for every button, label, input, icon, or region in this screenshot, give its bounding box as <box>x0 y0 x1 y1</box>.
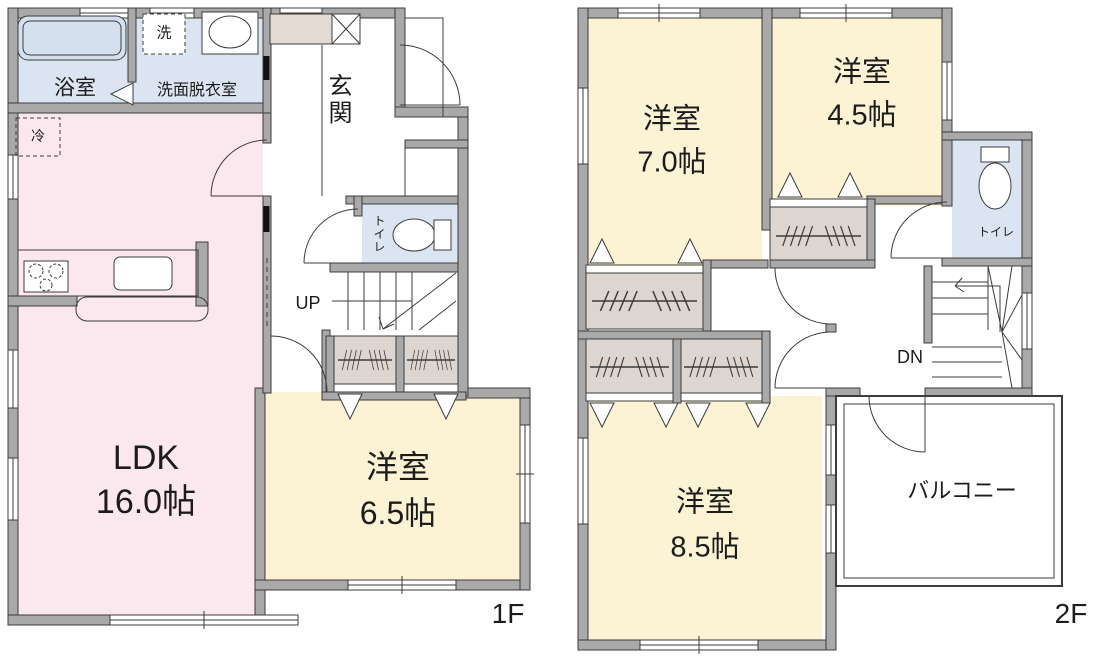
shoe-cabinet <box>270 14 332 44</box>
washer-label: 洗 <box>156 26 171 41</box>
bathtub-icon <box>18 16 126 60</box>
window <box>8 350 18 408</box>
window <box>8 155 18 199</box>
window <box>8 458 18 520</box>
door-arc-entrance <box>400 45 460 105</box>
bedroom45-size: 4.5帖 <box>827 102 896 131</box>
toilet-icon-1f <box>393 219 451 251</box>
shoe-box-x-icon <box>332 14 360 44</box>
room-bedroom70 <box>586 16 762 266</box>
window <box>578 438 588 524</box>
bedroom65-size: 6.5帖 <box>360 497 437 529</box>
bedroom85-label: 洋室 <box>676 489 734 518</box>
window <box>578 88 588 164</box>
toilet-icon-2f <box>979 147 1011 209</box>
room-bedroom65 <box>261 392 530 588</box>
bath-label: 浴室 <box>54 78 96 99</box>
washbasin-icon <box>202 12 258 54</box>
bedroom45-label: 洋室 <box>833 59 891 88</box>
floorplan: 浴室 洗面脱衣室 洗 冷 玄関 トイレ UP LDK 16.0帖 洋室 6.5帖… <box>0 0 1102 664</box>
bedroom65-label: 洋室 <box>366 451 430 483</box>
stairs-dn-label: DN <box>897 348 923 366</box>
ldk-size: 16.0帖 <box>96 485 196 519</box>
toilet-1f-label: トイレ <box>373 215 385 254</box>
door-arc-bedroom65 <box>271 336 327 392</box>
bedroom70-size: 7.0帖 <box>637 149 706 178</box>
toilet-2f-label: トイレ <box>978 226 1014 238</box>
window <box>826 425 836 475</box>
bedroom85-size: 8.5帖 <box>670 534 739 563</box>
window <box>942 62 952 120</box>
balcony-label: バルコニー <box>907 480 1017 502</box>
kitchen-sink-icon <box>114 257 172 290</box>
floor2-label: 2F <box>1055 600 1088 628</box>
door-arc-toilet-2f <box>891 202 947 258</box>
washroom-label: 洗面脱衣室 <box>157 83 237 99</box>
floor1-label: 1F <box>492 600 525 628</box>
porch-outline <box>405 18 443 117</box>
stairs-1f <box>332 272 456 330</box>
door-arc-toilet-1f <box>304 209 358 263</box>
room-ldk <box>10 105 263 623</box>
window <box>1022 293 1032 349</box>
fridge-label: 冷 <box>31 129 45 143</box>
bedroom70-label: 洋室 <box>643 106 701 135</box>
stove-icon <box>24 261 68 292</box>
entrance-label: 玄関 <box>325 73 349 127</box>
ldk-label: LDK <box>113 441 179 475</box>
stairs-2f <box>932 266 1022 388</box>
window <box>826 505 836 553</box>
stairs-up-label: UP <box>295 294 320 312</box>
floorplan-drawing <box>0 0 1102 664</box>
